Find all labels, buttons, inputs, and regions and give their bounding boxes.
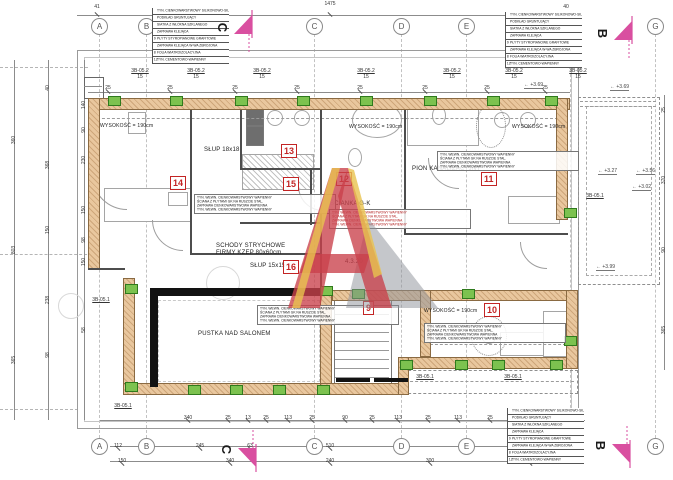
section-marker-shapes: [0, 0, 673, 480]
section-letter: C: [219, 445, 234, 454]
section-letter: B: [593, 441, 608, 450]
floor-plan-sheet: AABBCCDDEEFFGG910111213141516WYSOKOŚĆ = …: [0, 0, 673, 480]
section-letter: B: [595, 29, 610, 38]
section-letter: C: [215, 23, 230, 32]
